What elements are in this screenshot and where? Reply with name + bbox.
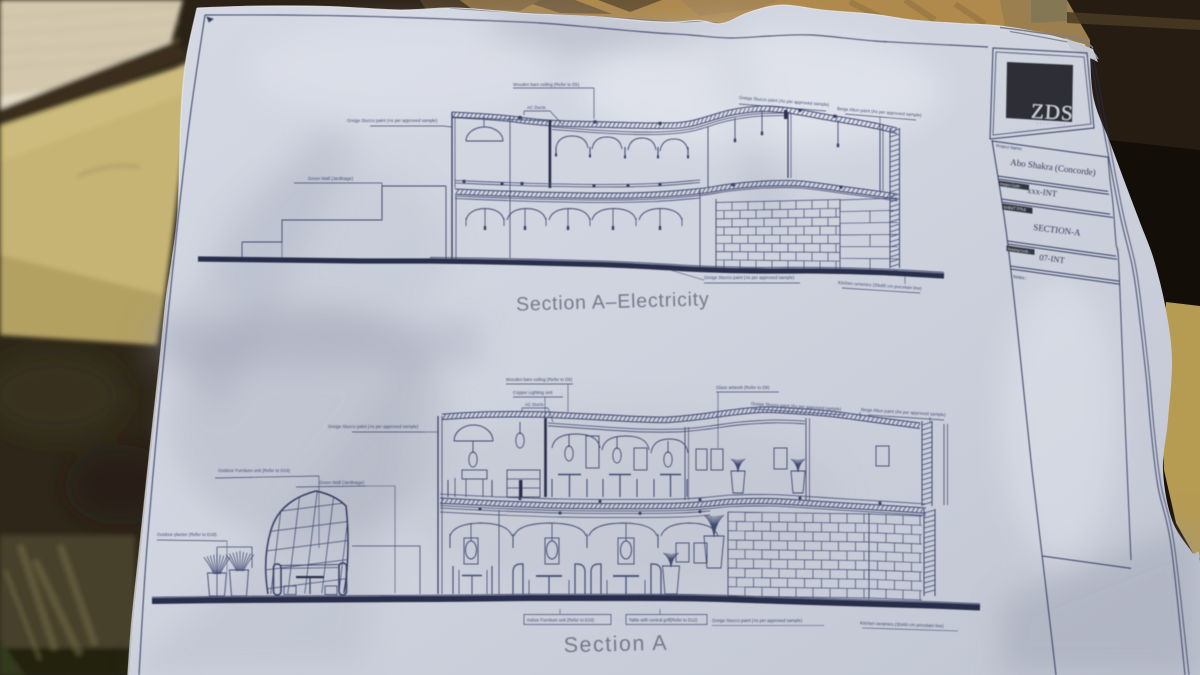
svg-text:AC Ducts: AC Ducts	[525, 402, 544, 407]
svg-text:Outdoor Furniture unit (Refer: Outdoor Furniture unit (Refer to D16)	[218, 468, 291, 473]
svg-text:Greige Stucco paint (As per ap: Greige Stucco paint (As per approved sam…	[347, 118, 438, 123]
svg-text:Section A: Section A	[563, 631, 668, 658]
svg-text:Green Wall (Jardinage): Green Wall (Jardinage)	[319, 480, 365, 485]
svg-text:Greige Stucco paint (As per ap: Greige Stucco paint (As per approved sam…	[712, 618, 803, 623]
svg-text:Greige Stucco paint (As per ap: Greige Stucco paint (As per approved sam…	[704, 275, 795, 280]
svg-text:AC Ducts: AC Ducts	[527, 105, 546, 110]
svg-text:Wooden bars ceiling (Refer to: Wooden bars ceiling (Refer to D5)	[506, 377, 573, 382]
svg-text:Outdoor planter (Refer to D18): Outdoor planter (Refer to D18)	[157, 532, 217, 537]
svg-text:Copper Lighting unit: Copper Lighting unit	[513, 390, 553, 395]
svg-text:Glass artwork (Refer to D9): Glass artwork (Refer to D9)	[716, 385, 770, 390]
svg-text:Greige Stucco paint (As per ap: Greige Stucco paint (As per approved sam…	[328, 424, 419, 429]
svg-text:Indoor Furniture unit (Refer t: Indoor Furniture unit (Refer to D10)	[527, 618, 595, 623]
svg-text:Wooden bars ceiling (Refer to: Wooden bars ceiling (Refer to D5)	[513, 82, 580, 87]
svg-text:Table with central grill(Refer: Table with central grill(Refer to D12)	[629, 618, 698, 623]
svg-text:Green Wall (Jardinage): Green Wall (Jardinage)	[308, 176, 354, 181]
